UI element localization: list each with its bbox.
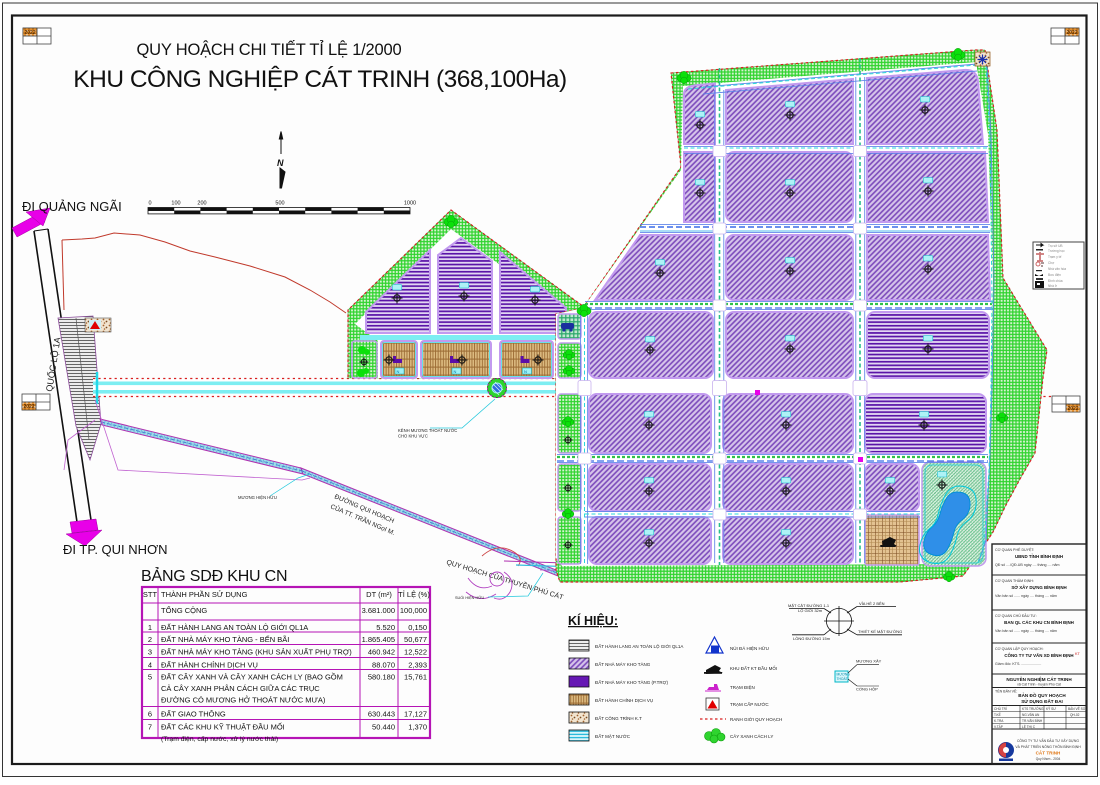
svg-text:2022: 2022: [1067, 30, 1078, 36]
svg-text:TRẠM CẤP NƯỚC: TRẠM CẤP NƯỚC: [730, 701, 769, 707]
svg-text:12,522: 12,522: [404, 648, 427, 657]
svg-text:88.070: 88.070: [372, 661, 395, 670]
svg-text:5: 5: [148, 673, 152, 682]
svg-text:4: 4: [148, 661, 152, 670]
svg-text:THIẾT KẾ MẶT ĐƯỜNG: THIẾT KẾ MẶT ĐƯỜNG: [858, 629, 902, 634]
svg-text:50.440: 50.440: [372, 723, 395, 732]
svg-text:QĐ số ..../QĐ-UB ngày .... th: QĐ số ..../QĐ-UB ngày .... tháng .... nă…: [995, 563, 1060, 567]
svg-text:V.TẤP: V.TẤP: [994, 725, 1003, 729]
svg-text:TRẠM ĐIỆN: TRẠM ĐIỆN: [730, 683, 755, 690]
svg-text:CÂY XANH CÁCH LY: CÂY XANH CÁCH LY: [730, 733, 773, 739]
svg-text:LỘ GIỚI 32m: LỘ GIỚI 32m: [798, 608, 823, 613]
svg-text:Trường học: Trường học: [1048, 249, 1065, 253]
svg-text:Trạm y tế: Trạm y tế: [1048, 255, 1062, 259]
svg-text:500: 500: [275, 201, 284, 207]
svg-text:5.520: 5.520: [376, 623, 395, 632]
svg-text:2: 2: [148, 635, 152, 644]
svg-text:7: 7: [148, 723, 152, 732]
svg-text:50,677: 50,677: [404, 635, 427, 644]
svg-text:460.942: 460.942: [368, 648, 395, 657]
svg-text:ĐẤT GIAO THÔNG: ĐẤT GIAO THÔNG: [161, 709, 226, 719]
svg-text:LÒNG ĐƯỜNG 15m: LÒNG ĐƯỜNG 15m: [793, 636, 831, 641]
svg-text:VÀ PHÁT TRIỂN NÔNG THÔN BÌNH Đ: VÀ PHÁT TRIỂN NÔNG THÔN BÌNH ĐỊNH: [1015, 744, 1081, 749]
svg-text:ĐƯỜNG CÓ MƯƠNG HỞ THOÁT NƯỚC M: ĐƯỜNG CÓ MƯƠNG HỞ THOÁT NƯỚC MƯA): [161, 696, 326, 705]
svg-text:T.KẾ: T.KẾ: [994, 712, 1001, 717]
svg-text:N: N: [524, 369, 527, 374]
svg-text:Nhà ở: Nhà ở: [1048, 284, 1057, 288]
svg-text:BẢN ĐỒ QUY HOẠCH: BẢN ĐỒ QUY HOẠCH: [1018, 692, 1066, 698]
svg-text:SỞ XÂY DỰNG BÌNH ĐỊNH: SỞ XÂY DỰNG BÌNH ĐỊNH: [1011, 585, 1066, 590]
svg-text:CƠ QUAN LẬP QUY HOẠCH:: CƠ QUAN LẬP QUY HOẠCH:: [995, 647, 1043, 651]
svg-text:BẢN VẼ SỐ: BẢN VẼ SỐ: [1068, 706, 1086, 711]
svg-text:630.443: 630.443: [368, 710, 395, 719]
svg-text:TỈ LỆ (%): TỈ LỆ (%): [398, 590, 430, 599]
svg-text:NÚI ĐÁ HIỆN HỮU: NÚI ĐÁ HIỆN HỮU: [730, 644, 769, 651]
svg-text:ĐẤT NHÀ MÁY KHO TÀNG - BẾN BÃI: ĐẤT NHÀ MÁY KHO TÀNG - BẾN BÃI: [161, 634, 289, 644]
svg-text:K.TRA: K.TRA: [994, 719, 1004, 723]
svg-text:ĐẤT CÁC KHU KỸ THUẬT ĐẦU MỐI: ĐẤT CÁC KHU KỸ THUẬT ĐẦU MỐI: [161, 722, 285, 732]
svg-text:NG.VĂN AN: NG.VĂN AN: [1022, 713, 1040, 717]
svg-text:ĐẤT CÂY XANH VÀ CÂY XANH CÁCH: ĐẤT CÂY XANH VÀ CÂY XANH CÁCH LY (BAO GỒ…: [161, 672, 343, 682]
svg-text:(Trạm điện, cấp nước, xử lý nư: (Trạm điện, cấp nước, xử lý nước thải): [161, 734, 278, 743]
svg-text:UBND TỈNH BÌNH ĐỊNH: UBND TỈNH BÌNH ĐỊNH: [1015, 554, 1063, 559]
svg-text:DT (m²): DT (m²): [366, 590, 392, 599]
svg-text:ĐẤT HÀNH CHÍNH DỊCH VỤ: ĐẤT HÀNH CHÍNH DỊCH VỤ: [161, 660, 258, 670]
svg-text:TÊN BẢN VẼ:: TÊN BẢN VẼ:: [995, 689, 1017, 694]
svg-text:Văn bản số ...... ngày .... t: Văn bản số ...... ngày .... tháng .... n…: [995, 594, 1057, 598]
svg-text:6: 6: [148, 710, 152, 719]
svg-text:Trụ sở UB: Trụ sở UB: [1048, 244, 1063, 248]
svg-text:Quy Nhơn - 2004: Quy Nhơn - 2004: [1036, 757, 1061, 761]
svg-text:KÍ HIỆU:: KÍ HIỆU:: [568, 613, 618, 628]
svg-text:CÔNG TY TƯ VẤN XD BÌNH ĐỊNH: CÔNG TY TƯ VẤN XD BÌNH ĐỊNH: [1004, 653, 1073, 658]
svg-text:N: N: [277, 158, 284, 168]
svg-text:CƠ QUAN PHÊ DUYỆT:: CƠ QUAN PHÊ DUYỆT:: [995, 547, 1034, 552]
svg-text:2022: 2022: [1068, 406, 1079, 412]
svg-text:CẢ CÂY XANH PHÂN CÁCH GIỮA CÁC: CẢ CÂY XANH PHÂN CÁCH GIỮA CÁC TRỤC: [161, 684, 320, 693]
svg-text:SỬ DỤNG ĐẤT ĐAI: SỬ DỤNG ĐẤT ĐAI: [1021, 698, 1063, 704]
svg-text:KÊNH MƯƠNG THOÁT NƯỚC: KÊNH MƯƠNG THOÁT NƯỚC: [398, 428, 457, 433]
svg-text:100: 100: [171, 201, 180, 207]
svg-text:NGUYỄN NGHIỆM CÁT TRINH: NGUYỄN NGHIỆM CÁT TRINH: [1006, 675, 1072, 682]
svg-text:ĐẤT HÀNH CHÍNH DỊCH VỤ: ĐẤT HÀNH CHÍNH DỊCH VỤ: [595, 697, 653, 703]
svg-text:CỐNG HỘP: CỐNG HỘP: [856, 687, 878, 692]
svg-text:3: 3: [148, 648, 152, 657]
svg-text:THOÁT: THOÁT: [837, 677, 848, 681]
svg-text:KHU CÔNG NGHIỆP CÁT TRINH (368: KHU CÔNG NGHIỆP CÁT TRINH (368,100Ha): [73, 65, 566, 93]
svg-text:VỈA HÈ 2 BÊN: VỈA HÈ 2 BÊN: [859, 601, 885, 606]
svg-text:THÀNH PHẦN SỬ DỤNG: THÀNH PHẦN SỬ DỤNG: [161, 589, 248, 599]
svg-text:200: 200: [197, 201, 206, 207]
svg-text:MƯƠNG HIỆN HỮU: MƯƠNG HIỆN HỮU: [238, 495, 277, 500]
svg-text:ĐẤT HÀNH LANG AN TOÀN LỘ GIỚI: ĐẤT HÀNH LANG AN TOÀN LỘ GIỚI QL1A: [595, 643, 683, 649]
svg-text:1,370: 1,370: [408, 723, 427, 732]
svg-text:580.180: 580.180: [368, 673, 395, 682]
svg-text:15,761: 15,761: [404, 673, 427, 682]
svg-text:STT: STT: [143, 590, 158, 599]
svg-text:Giám đốc: KTS. ..............: Giám đốc: KTS. ....................: [995, 662, 1041, 666]
svg-text:ĐẤT NHÀ MÁY KHO TÀNG: ĐẤT NHÀ MÁY KHO TÀNG: [595, 661, 651, 667]
svg-text:ĐẤT NHÀ MÁY KHO TÀNG (P.TRỢ): ĐẤT NHÀ MÁY KHO TÀNG (P.TRỢ): [595, 679, 669, 685]
svg-text:Văn bản số ...... ngày .... t: Văn bản số ...... ngày .... tháng .... n…: [995, 629, 1057, 633]
svg-text:ĐẤT CÔNG TRÌNH K.T: ĐẤT CÔNG TRÌNH K.T: [595, 715, 642, 721]
svg-text:TR.VĂN BÌNH: TR.VĂN BÌNH: [1022, 719, 1043, 723]
svg-text:CÔNG TY TƯ VẤN ĐẦU TƯ XÂY DỰNG: CÔNG TY TƯ VẤN ĐẦU TƯ XÂY DỰNG: [1017, 738, 1079, 743]
svg-text:ĐẤT NHÀ MÁY KHO TÀNG (KHU SẢN: ĐẤT NHÀ MÁY KHO TÀNG (KHU SẢN XUẤT PHỤ T…: [161, 647, 352, 657]
svg-text:CÁT TRINH: CÁT TRINH: [1036, 750, 1061, 756]
svg-text:KTS TRƯỞNG: KTS TRƯỞNG: [1022, 706, 1044, 711]
svg-text:2022: 2022: [25, 30, 36, 36]
svg-text:BẢNG SDĐ KHU CN: BẢNG SDĐ KHU CN: [141, 566, 287, 585]
svg-text:ĐI TP. QUI NHƠN: ĐI TP. QUI NHƠN: [63, 542, 168, 557]
svg-text:3.681.000: 3.681.000: [362, 606, 395, 615]
svg-text:ĐI QUẢNG NGÃI: ĐI QUẢNG NGÃI: [22, 199, 122, 214]
svg-text:100,000: 100,000: [400, 606, 427, 615]
svg-text:CHỦ TRÌ: CHỦ TRÌ: [994, 706, 1007, 711]
svg-text:TỔNG CỘNG: TỔNG CỘNG: [161, 606, 207, 615]
svg-text:xã Cát Trinh - huyện Phù Cát: xã Cát Trinh - huyện Phù Cát: [1017, 683, 1061, 687]
svg-text:CƠ QUAN CHỦ ĐẦU TƯ:: CƠ QUAN CHỦ ĐẦU TƯ:: [995, 613, 1037, 618]
svg-text:N: N: [397, 369, 400, 374]
svg-text:N: N: [454, 369, 457, 374]
svg-text:BAN QL CÁC KHU CN BÌNH ĐỊNH: BAN QL CÁC KHU CN BÌNH ĐỊNH: [1004, 620, 1074, 625]
svg-text:KỸ SƯ: KỸ SƯ: [1046, 706, 1056, 711]
svg-text:KHU ĐẤT KT ĐẦU MỐI: KHU ĐẤT KT ĐẦU MỐI: [730, 665, 777, 671]
svg-text:LÊ THỊ C: LÊ THỊ C: [1022, 724, 1036, 729]
svg-text:0,150: 0,150: [408, 623, 427, 632]
svg-text:1000: 1000: [404, 201, 416, 207]
svg-text:Bưu điện: Bưu điện: [1048, 273, 1061, 277]
svg-text:1.865.405: 1.865.405: [362, 635, 395, 644]
svg-text:Đình chùa: Đình chùa: [1048, 279, 1063, 283]
svg-text:ĐẤT HÀNH LANG AN TOÀN LỘ GIỚI: ĐẤT HÀNH LANG AN TOÀN LỘ GIỚI QL1A: [161, 622, 308, 632]
svg-text:2,393: 2,393: [408, 661, 427, 670]
svg-text:KT: KT: [1075, 652, 1081, 656]
svg-text:0: 0: [148, 201, 151, 207]
svg-text:RANH GIỚI QUY HOẠCH: RANH GIỚI QUY HOẠCH: [730, 716, 782, 722]
svg-text:QH-02: QH-02: [1070, 713, 1080, 717]
svg-text:CƠ QUAN THẨM ĐỊNH:: CƠ QUAN THẨM ĐỊNH:: [995, 578, 1034, 583]
svg-text:ĐẤT MẶT NƯỚC: ĐẤT MẶT NƯỚC: [595, 733, 631, 739]
svg-text:Nhà văn hóa: Nhà văn hóa: [1048, 267, 1066, 271]
svg-text:1: 1: [148, 623, 152, 632]
svg-text:SUỐI HIỆN HỮU: SUỐI HIỆN HỮU: [455, 595, 484, 600]
svg-text:2022: 2022: [24, 404, 35, 410]
svg-text:CHO KHU VỰC: CHO KHU VỰC: [398, 434, 428, 439]
svg-text:Chợ: Chợ: [1048, 261, 1054, 265]
svg-text:17,127: 17,127: [404, 710, 427, 719]
svg-text:QUY HOẬCH CHI TIẾT TỈ LỆ 1/200: QUY HOẬCH CHI TIẾT TỈ LỆ 1/2000: [137, 40, 402, 59]
svg-text:MƯƠNG XÂY: MƯƠNG XÂY: [856, 659, 882, 664]
